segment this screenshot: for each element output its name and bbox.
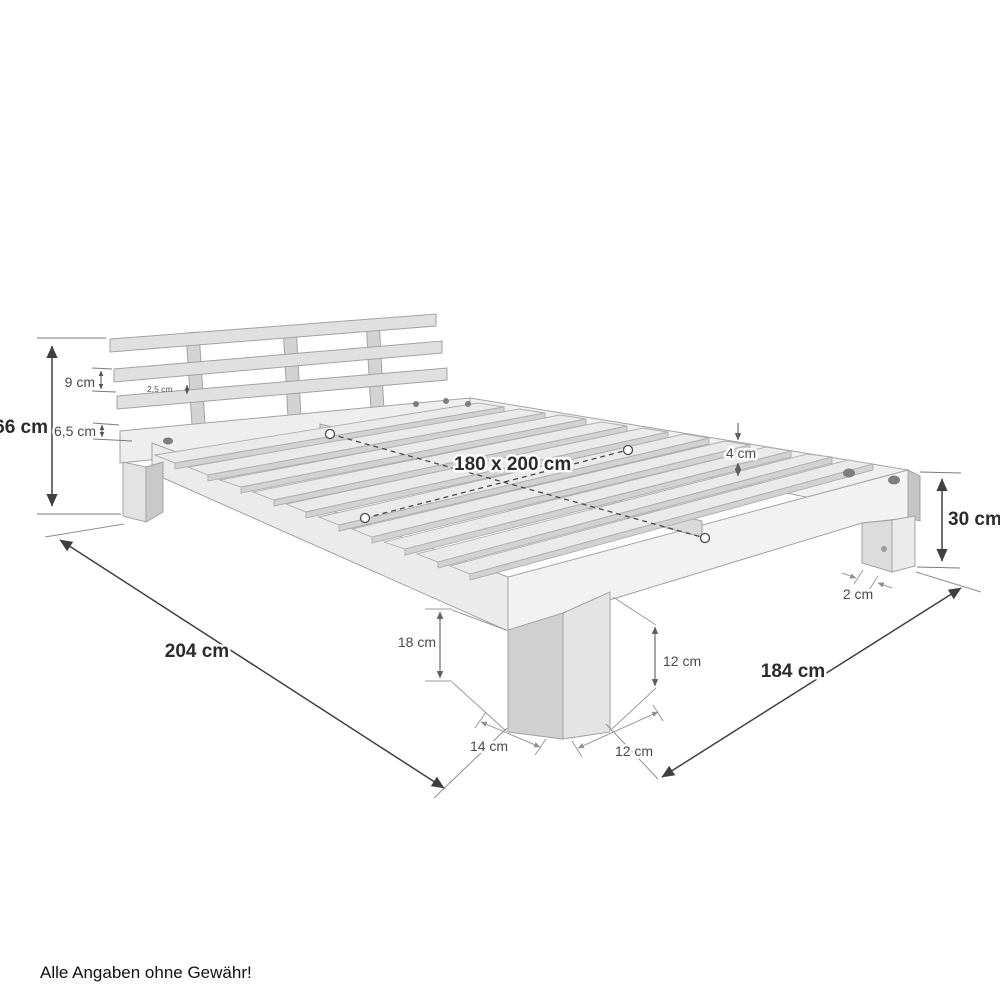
extension-slash [475, 712, 486, 728]
extension-slash [572, 741, 582, 757]
label-total-length: 204 cm [165, 641, 229, 662]
extension-line [92, 368, 112, 369]
diagonal-endpoint [624, 446, 633, 455]
dimension-line-foot-inset [842, 573, 856, 578]
diagonal-endpoint [361, 514, 370, 523]
extension-line [917, 567, 960, 568]
label-slat-thickness: 4 cm [726, 445, 756, 461]
dimension-line-foot-inset [878, 583, 892, 588]
bolt-hole [413, 401, 419, 407]
bolt-hole [888, 476, 900, 485]
bolt-hole [465, 401, 471, 407]
leg-front-left [508, 613, 563, 739]
extension-line [92, 391, 116, 392]
leg-front-right [862, 520, 892, 572]
bed-dimension-diagram-page: 66 cm 9 cm 6,5 cm 2,5 cm 180 x 200 cm 4 … [0, 0, 1000, 1000]
leg-head-left-side [146, 462, 163, 522]
dimension-line-total-width [662, 588, 961, 777]
extension-slash [854, 570, 863, 584]
label-headboard-gap: 6,5 cm [54, 423, 96, 439]
bolt-hole [843, 469, 855, 478]
headboard-post [283, 325, 301, 417]
rail-end-face [908, 470, 920, 521]
extension-line [93, 423, 119, 425]
extension-line [45, 524, 124, 537]
label-total-height: 66 cm [0, 417, 48, 438]
extension-line [920, 472, 961, 473]
leg-front-left-side [563, 592, 610, 739]
label-headboard-thickness: 2,5 cm [147, 384, 173, 394]
label-leg-depth: 14 cm [470, 738, 508, 754]
leg-front-right-side [892, 516, 915, 572]
extension-line [452, 682, 506, 731]
label-frame-height: 30 cm [948, 509, 1000, 530]
label-foot-inset: 2 cm [843, 586, 873, 602]
label-leg-width: 12 cm [615, 743, 653, 759]
label-leg-front-height: 12 cm [663, 653, 701, 669]
bolt-hole [163, 438, 173, 445]
diagonal-endpoint [326, 430, 335, 439]
headboard-post [366, 319, 384, 411]
bolt-hole [443, 398, 449, 404]
label-headboard-board: 9 cm [65, 374, 95, 390]
bed-dimension-diagram: 66 cm 9 cm 6,5 cm 2,5 cm 180 x 200 cm 4 … [0, 0, 1000, 1000]
extension-line [916, 572, 981, 592]
extension-slash [653, 705, 663, 721]
extension-line [613, 597, 656, 625]
label-lying-surface: 180 x 200 cm [454, 454, 571, 475]
diagonal-endpoint [701, 534, 710, 543]
bolt-hole [881, 546, 887, 552]
leg-head-left [123, 462, 146, 522]
label-total-width: 184 cm [761, 661, 825, 682]
label-underbed-clearance: 18 cm [398, 634, 436, 650]
extension-slash [535, 739, 546, 755]
footnote: Alle Angaben ohne Gewähr! [40, 963, 252, 982]
